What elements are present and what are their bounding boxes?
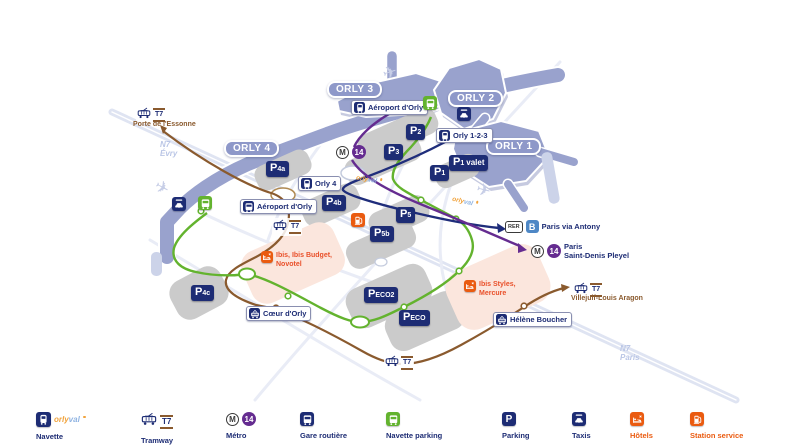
rer-b-line-badge: B — [526, 220, 539, 233]
legend-item-hotels: Hôtels — [630, 412, 653, 440]
plane-icon: ✈ — [151, 176, 173, 200]
parking-badge-p2: P2 — [406, 124, 425, 140]
legend-label: Tramway — [141, 436, 173, 445]
terminal-label-orly3: ORLY 3 — [327, 81, 382, 98]
parking-icon: P — [502, 412, 516, 426]
tram-icon — [273, 218, 287, 236]
rer-b-destination: RER B Paris via Antony — [505, 220, 600, 233]
navette-parking-icon — [423, 96, 437, 110]
taxi-icon — [172, 197, 186, 211]
navette-parking-icon — [198, 196, 212, 210]
rer-destination-text: Paris via Antony — [542, 222, 601, 231]
hotel-icon — [261, 251, 273, 263]
plane-icon: ✈ — [474, 179, 493, 202]
legend-item-taxis: Taxis — [572, 412, 591, 440]
parking-badge-p4a: P4a — [266, 161, 289, 177]
navette-icon — [354, 102, 365, 113]
parking-badge-p5: P5 — [396, 207, 415, 223]
station-coeur-orly: Cœur d'Orly — [246, 306, 311, 321]
terminal-label-orly4: ORLY 4 — [224, 140, 279, 157]
tram-stop-mid-west: T7 — [272, 218, 302, 236]
station-service-icon — [351, 213, 365, 227]
legend-item-tramway: T7 Tramway — [141, 412, 173, 445]
line-14-badge: 14 — [352, 145, 366, 159]
orlyval-logo: orlyval — [54, 415, 86, 424]
legend-label: Taxis — [572, 431, 591, 440]
parking-badge-p1: P1 — [430, 165, 449, 181]
legend-item-navette: orlyval Navette — [36, 412, 86, 441]
legend-item-navette-parking: Navette parking — [386, 412, 442, 440]
rer-badge: RER — [505, 221, 523, 233]
airport-map-canvas: ✈ ✈ ✈ — [0, 0, 792, 404]
tram-icon — [249, 308, 260, 319]
station-helene-boucher: Hélène Boucher — [493, 312, 572, 327]
legend-label: Métro — [226, 431, 256, 440]
navette-icon — [36, 412, 51, 427]
metro-14-station-badge: M 14 — [336, 145, 366, 159]
station-aeroport-orly-navette: Aéroport d'Orly — [351, 100, 428, 115]
taxi-icon — [457, 107, 471, 121]
legend-label: Parking — [502, 431, 530, 440]
legend-label: Hôtels — [630, 431, 653, 440]
hotel-label-west: Ibis, Ibis Budget, Novotel — [261, 251, 332, 269]
legend-item-gare-routiere: Gare routière — [300, 412, 347, 440]
hotel-names: Ibis, Ibis Budget, Novotel — [276, 251, 332, 269]
hotel-names: Ibis Styles, Mercure — [479, 280, 516, 298]
gare-routiere-icon — [243, 201, 254, 212]
metro-m-icon: M — [531, 245, 544, 258]
tram-stop-name: Porte de l'Essonne — [133, 121, 196, 128]
t7-badge: T7 — [401, 356, 413, 370]
tram-stop-mid-south: T7 — [384, 354, 414, 372]
station-aeroport-orly-bus: Aéroport d'Orly — [240, 199, 317, 214]
metro-14-destination: M 14 Paris Saint-Denis Pleyel — [531, 242, 629, 260]
legend-label: Gare routière — [300, 431, 347, 440]
station-service-icon — [690, 412, 704, 426]
navette-parking-icon — [386, 412, 400, 426]
legend-label: Navette — [36, 432, 86, 441]
station-label: Cœur d'Orly — [263, 309, 306, 318]
parking-badge-peco: PECO — [399, 310, 430, 326]
terminal-label-orly1: ORLY 1 — [486, 138, 541, 155]
station-label: Orly 4 — [315, 179, 336, 188]
station-label: Hélène Boucher — [510, 315, 567, 324]
taxi-icon — [572, 412, 586, 426]
legend-item-station-service: Station service — [690, 412, 743, 440]
legend-item-parking: P Parking — [502, 412, 530, 440]
gare-routiere-icon — [300, 412, 314, 426]
metro-m-icon: M — [226, 413, 239, 426]
navette-icon — [439, 130, 450, 141]
parking-badge-p3: P3 — [384, 144, 403, 160]
tram-stop-name: Villejuif-Louis Aragon — [571, 295, 643, 302]
parking-badge-p4b: P4b — [322, 195, 346, 211]
line-14-badge: 14 — [242, 412, 256, 426]
hotel-label-east: Ibis Styles, Mercure — [464, 280, 516, 298]
parking-badge-p4c: P4c — [191, 285, 214, 301]
station-orly-123: Orly 1-2-3 — [436, 128, 493, 143]
parking-badge-peco2: PECO2 — [364, 287, 398, 303]
station-label: Orly 1-2-3 — [453, 131, 488, 140]
road-label-n7-paris: N7 Paris — [620, 344, 640, 362]
line-14-badge: 14 — [547, 244, 561, 258]
tram-icon — [141, 412, 157, 431]
parking-badge-p1-valet: P1valet — [449, 155, 488, 171]
t7-badge: T7 — [153, 108, 165, 122]
orly-airport-access-map: ✈ ✈ ✈ ORLY 4 ORLY 3 ORLY 2 ORLY 1 Aéropo… — [0, 0, 792, 445]
station-label: Aéroport d'Orly — [368, 103, 423, 112]
road-label-n7-evry: N7 Évry — [160, 140, 177, 158]
station-orly-4: Orly 4 — [298, 176, 341, 191]
parking-badge-p5b: P5b — [370, 226, 394, 242]
legend-label: Navette parking — [386, 431, 442, 440]
station-label: Aéroport d'Orly — [257, 202, 312, 211]
navette-icon — [301, 178, 312, 189]
terminal-label-orly2: ORLY 2 — [448, 90, 503, 107]
t7-badge: T7 — [289, 220, 301, 234]
hotel-icon — [630, 412, 644, 426]
tram-icon — [385, 354, 399, 372]
tram-icon — [496, 314, 507, 325]
hotel-icon — [464, 280, 476, 292]
metro-m-icon: M — [336, 146, 349, 159]
metro-destination-text: Paris Saint-Denis Pleyel — [564, 242, 629, 260]
legend-label: Station service — [690, 431, 743, 440]
t7-badge: T7 — [160, 415, 173, 429]
legend-item-metro: M 14 Métro — [226, 412, 256, 440]
